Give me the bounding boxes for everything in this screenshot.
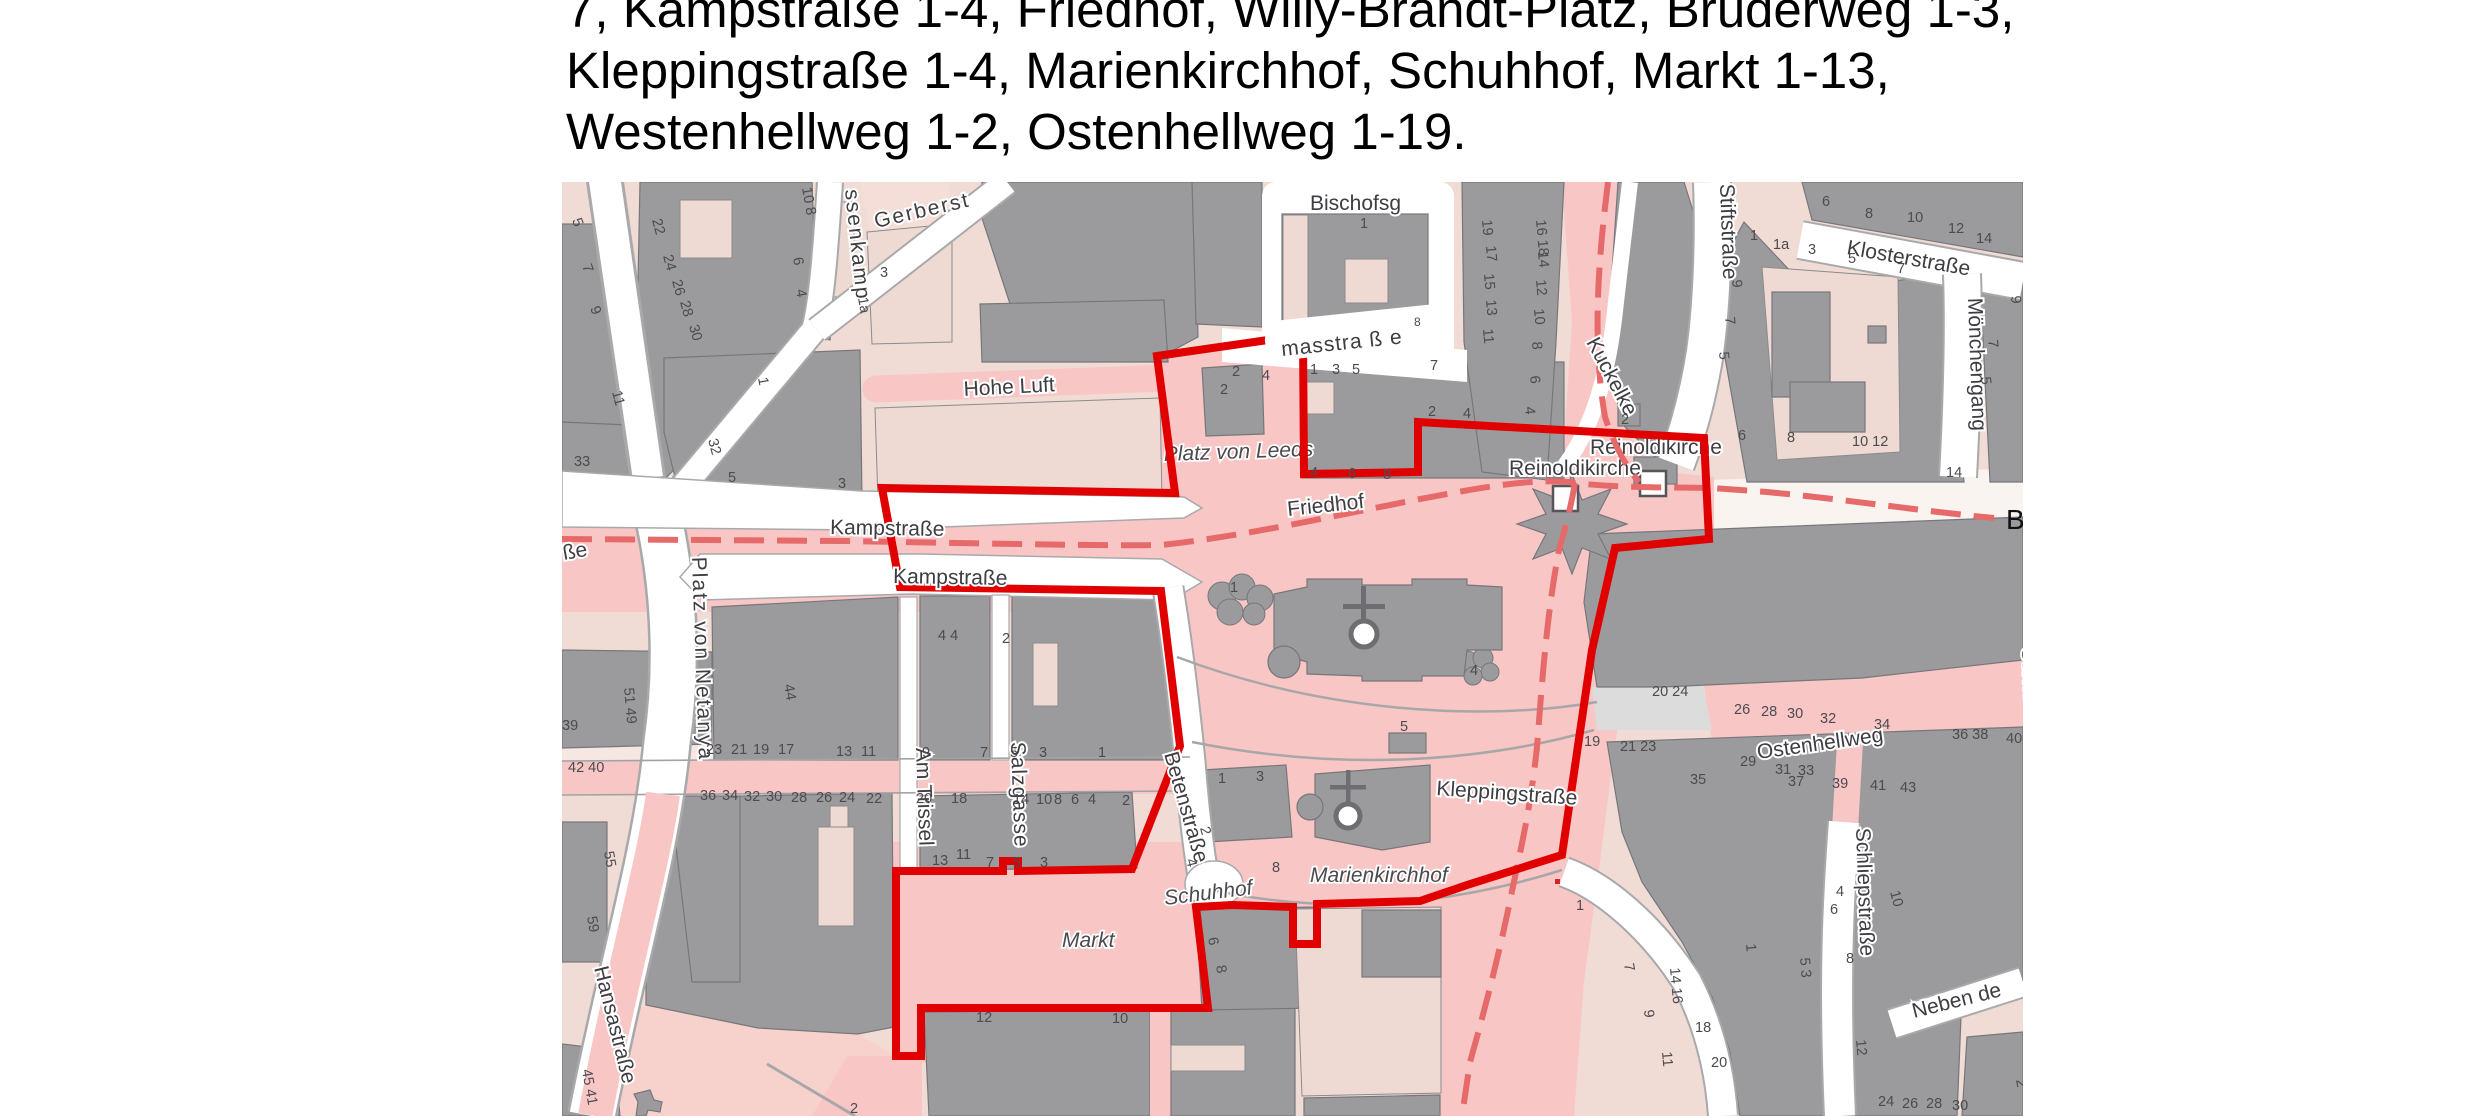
svg-text:2: 2 <box>2012 1078 2023 1089</box>
svg-text:8: 8 <box>1787 430 1795 446</box>
svg-text:5: 5 <box>1977 376 1994 385</box>
svg-text:Bischofsg: Bischofsg <box>1310 192 1401 215</box>
svg-text:6: 6 <box>1830 902 1838 918</box>
svg-text:2: 2 <box>1232 364 1240 380</box>
svg-text:6: 6 <box>1526 375 1543 384</box>
svg-text:24: 24 <box>839 790 855 806</box>
svg-text:8: 8 <box>1528 341 1545 350</box>
svg-text:12: 12 <box>976 1010 992 1026</box>
svg-text:5: 5 <box>1715 351 1732 360</box>
svg-text:39: 39 <box>1832 776 1848 792</box>
svg-text:1: 1 <box>1098 745 1106 761</box>
svg-text:5: 5 <box>1848 251 1856 267</box>
svg-text:9: 9 <box>1640 1009 1657 1018</box>
svg-text:2: 2 <box>1002 631 1010 647</box>
svg-text:3: 3 <box>1808 242 1816 258</box>
svg-text:30: 30 <box>766 789 782 805</box>
svg-text:28: 28 <box>1761 704 1777 720</box>
svg-text:Mönchengang: Mönchengang <box>1963 297 1991 431</box>
svg-text:1: 1 <box>1230 580 1238 596</box>
svg-text:55: 55 <box>600 850 619 869</box>
svg-text:13: 13 <box>932 853 948 869</box>
svg-text:13: 13 <box>1482 299 1499 316</box>
svg-text:Schliepstraße: Schliepstraße <box>1851 827 1878 956</box>
svg-text:1a: 1a <box>1773 237 1790 253</box>
svg-text:6: 6 <box>1822 194 1830 210</box>
svg-text:32: 32 <box>744 789 760 805</box>
svg-text:9: 9 <box>2007 295 2023 304</box>
svg-text:4: 4 <box>1463 406 1471 422</box>
svg-text:34: 34 <box>1874 717 1890 733</box>
svg-text:11: 11 <box>1479 328 1496 344</box>
svg-text:14: 14 <box>1534 251 1551 268</box>
svg-text:3: 3 <box>1256 769 1264 785</box>
svg-text:21: 21 <box>731 742 747 758</box>
svg-text:20: 20 <box>1711 1055 1727 1071</box>
svg-text:18: 18 <box>1695 1020 1711 1036</box>
svg-text:21 23: 21 23 <box>1620 739 1656 755</box>
svg-text:22: 22 <box>866 791 882 807</box>
svg-text:10: 10 <box>1036 792 1052 808</box>
svg-text:17: 17 <box>1482 245 1499 262</box>
svg-text:6: 6 <box>1738 428 1746 444</box>
svg-text:37: 37 <box>1788 774 1804 790</box>
svg-text:17: 17 <box>778 742 794 758</box>
svg-text:3: 3 <box>1332 362 1340 378</box>
svg-text:6: 6 <box>1071 792 1079 808</box>
svg-text:Hohe Luft: Hohe Luft <box>963 373 1055 401</box>
svg-text:39: 39 <box>562 718 578 734</box>
svg-text:B: B <box>2006 504 2023 535</box>
svg-text:2: 2 <box>1220 382 1228 398</box>
svg-text:7: 7 <box>986 855 994 871</box>
svg-text:2: 2 <box>1428 404 1436 420</box>
svg-text:2: 2 <box>850 1101 858 1116</box>
svg-text:14: 14 <box>1976 231 1992 247</box>
svg-text:28: 28 <box>791 790 807 806</box>
svg-text:28: 28 <box>1926 1096 1942 1112</box>
svg-text:7: 7 <box>1984 339 2001 348</box>
svg-text:1: 1 <box>1218 771 1226 787</box>
svg-text:7: 7 <box>1721 316 1738 325</box>
svg-text:26: 26 <box>1902 1096 1918 1112</box>
svg-text:10: 10 <box>1112 1011 1128 1027</box>
svg-text:3: 3 <box>1040 855 1048 871</box>
svg-text:59: 59 <box>583 915 602 934</box>
svg-text:ße: ße <box>562 538 589 565</box>
svg-text:8: 8 <box>1272 860 1280 876</box>
svg-text:9: 9 <box>1728 279 1745 288</box>
svg-text:11: 11 <box>1658 1051 1675 1067</box>
svg-text:43: 43 <box>1900 780 1916 796</box>
svg-text:1: 1 <box>1742 943 1759 952</box>
svg-text:3: 3 <box>1039 745 1047 761</box>
svg-text:4: 4 <box>1310 465 1318 481</box>
svg-text:44: 44 <box>780 683 799 702</box>
svg-text:36 38: 36 38 <box>1952 727 1988 743</box>
svg-text:10 12: 10 12 <box>1852 434 1888 450</box>
svg-text:5: 5 <box>1400 719 1408 735</box>
svg-text:14: 14 <box>1013 792 1029 808</box>
svg-text:20: 20 <box>916 791 932 807</box>
svg-text:12: 12 <box>1948 221 1964 237</box>
svg-text:1: 1 <box>1360 216 1368 232</box>
svg-text:20 24: 20 24 <box>1652 684 1688 700</box>
svg-text:4: 4 <box>1470 663 1478 679</box>
svg-text:3: 3 <box>880 265 888 281</box>
svg-text:1: 1 <box>1310 362 1318 378</box>
svg-text:1: 1 <box>1576 898 1584 914</box>
svg-text:8: 8 <box>1414 315 1421 329</box>
svg-text:32: 32 <box>1820 711 1836 727</box>
svg-text:1: 1 <box>1750 228 1758 244</box>
svg-text:7: 7 <box>1897 261 1905 277</box>
svg-text:4: 4 <box>1088 792 1096 808</box>
svg-text:19: 19 <box>1584 734 1600 750</box>
svg-text:11: 11 <box>861 744 876 760</box>
svg-text:Stiftstraße: Stiftstraße <box>1715 183 1741 279</box>
svg-text:5 3: 5 3 <box>1796 957 1814 978</box>
svg-text:36: 36 <box>700 788 716 804</box>
svg-text:12: 12 <box>1532 279 1549 296</box>
svg-text:51 49: 51 49 <box>620 687 639 725</box>
svg-text:Kampstraße: Kampstraße <box>893 565 1008 590</box>
svg-text:11: 11 <box>956 847 971 863</box>
svg-text:26: 26 <box>1734 702 1750 718</box>
svg-text:26: 26 <box>816 790 832 806</box>
svg-text:2: 2 <box>1621 412 1629 428</box>
svg-text:3: 3 <box>838 476 846 492</box>
svg-text:30: 30 <box>1787 706 1803 722</box>
svg-text:19: 19 <box>753 742 769 758</box>
svg-text:30: 30 <box>1952 1098 1968 1114</box>
svg-text:9: 9 <box>922 745 930 761</box>
svg-text:4 4: 4 4 <box>938 628 958 644</box>
svg-text:Markt: Markt <box>1062 929 1116 952</box>
svg-text:42 40: 42 40 <box>568 760 604 776</box>
svg-text:24: 24 <box>1878 1094 1894 1110</box>
svg-text:14 16: 14 16 <box>1666 967 1685 1005</box>
svg-text:19: 19 <box>1478 219 1495 236</box>
svg-text:40: 40 <box>2006 731 2022 747</box>
svg-text:15: 15 <box>1480 273 1497 290</box>
svg-text:4: 4 <box>1836 884 1844 900</box>
svg-text:6: 6 <box>1348 466 1356 482</box>
svg-text:8: 8 <box>1865 206 1873 222</box>
svg-text:12: 12 <box>1852 1039 1869 1056</box>
svg-text:5: 5 <box>1013 855 1021 871</box>
svg-text:34: 34 <box>722 788 738 804</box>
svg-text:23: 23 <box>706 742 722 758</box>
svg-text:10: 10 <box>1907 210 1923 226</box>
svg-text:5: 5 <box>1352 362 1360 378</box>
svg-text:Kampstraße: Kampstraße <box>830 516 945 541</box>
svg-text:5: 5 <box>728 470 736 486</box>
svg-text:41: 41 <box>1870 778 1886 794</box>
svg-text:8: 8 <box>1383 467 1391 483</box>
svg-text:29: 29 <box>1740 754 1756 770</box>
svg-text:8: 8 <box>1054 792 1062 808</box>
svg-text:33: 33 <box>574 454 590 470</box>
svg-text:13: 13 <box>836 744 852 760</box>
svg-text:8: 8 <box>1846 951 1854 967</box>
svg-text:Marienkirchhof: Marienkirchhof <box>1310 864 1450 887</box>
svg-text:14: 14 <box>1946 465 1962 481</box>
svg-text:18: 18 <box>951 791 967 807</box>
svg-text:35: 35 <box>1690 772 1706 788</box>
svg-text:7: 7 <box>980 745 988 761</box>
svg-text:2: 2 <box>1122 793 1130 809</box>
svg-text:5: 5 <box>1010 745 1018 761</box>
svg-text:4: 4 <box>1262 368 1270 384</box>
svg-text:7: 7 <box>1430 358 1438 374</box>
svg-text:4: 4 <box>1521 406 1538 415</box>
svg-text:10: 10 <box>1530 308 1547 325</box>
